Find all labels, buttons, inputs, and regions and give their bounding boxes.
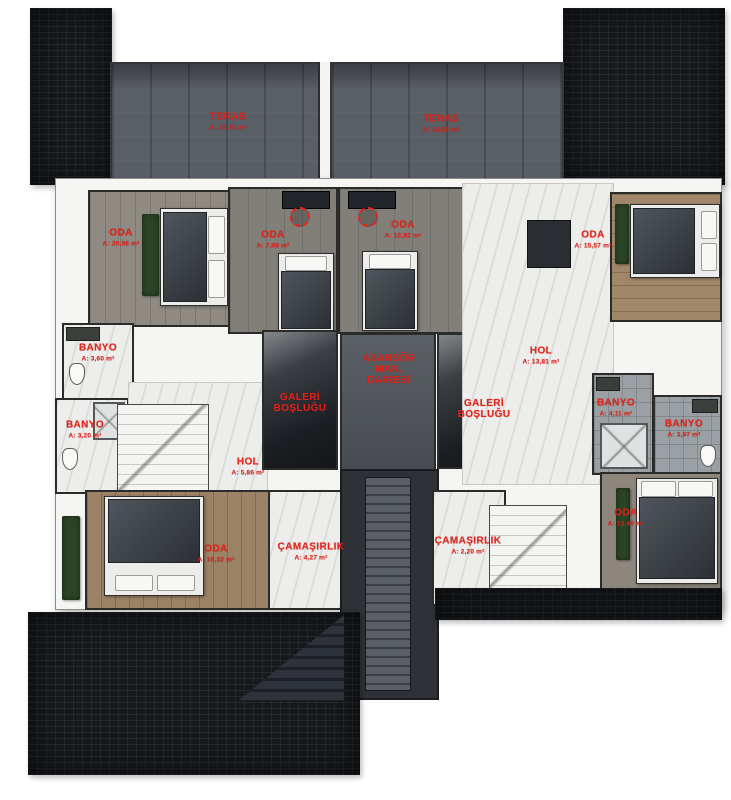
bathroom-counter bbox=[596, 377, 620, 391]
bed-blanket bbox=[633, 208, 695, 274]
bed-blanket bbox=[163, 212, 207, 302]
label-galeri-boslugu-left: GALERİ BOŞLUĞU bbox=[274, 393, 327, 415]
bed-blanket bbox=[365, 269, 415, 329]
label-camasirlik-right: ÇAMAŞIRLIK A: 2,20 m² bbox=[435, 537, 502, 556]
bed bbox=[160, 208, 228, 306]
desk bbox=[348, 191, 396, 209]
bed-blanket bbox=[281, 271, 331, 329]
room-oda-top-left bbox=[88, 190, 232, 327]
label-oda-top-left: ODA A: 20,06 m² bbox=[103, 229, 140, 248]
label-teras-left: TERAS A: 14,75 m² bbox=[210, 113, 247, 132]
stairs-left bbox=[117, 404, 209, 492]
shaft-stairs bbox=[365, 477, 411, 691]
bed bbox=[104, 496, 204, 596]
bed-pillow bbox=[678, 481, 713, 497]
shower bbox=[600, 423, 648, 469]
label-camasirlik-left: ÇAMAŞIRLIK A: 4,27 m² bbox=[278, 543, 345, 562]
plant bbox=[142, 214, 159, 296]
label-teras-right: TERAS A: 14,35 m² bbox=[423, 115, 460, 134]
label-oda-mid-left: ODA A: 7,08 m² bbox=[256, 231, 289, 250]
bed bbox=[636, 478, 718, 584]
room-oda-top-right bbox=[610, 192, 722, 322]
bed bbox=[362, 251, 418, 331]
bed-blanket bbox=[108, 499, 200, 563]
wardrobe bbox=[527, 220, 571, 268]
plant bbox=[62, 516, 80, 600]
bed-pillow bbox=[369, 254, 411, 269]
label-oda-mid-right: ODA A: 12,92 m² bbox=[385, 221, 422, 240]
toilet bbox=[69, 363, 85, 385]
room-oda-mid-right bbox=[338, 187, 466, 334]
label-oda-bottom-left: ODA A: 16,32 m² bbox=[198, 545, 235, 564]
roof-bottom-right bbox=[435, 588, 722, 620]
bathroom-counter bbox=[66, 327, 100, 341]
toilet bbox=[700, 445, 716, 467]
label-galeri-boslugu-right: GALERİ BOŞLUĞU bbox=[458, 399, 511, 421]
label-oda-top-right: ODA A: 15,57 m² bbox=[575, 231, 612, 250]
label-banyo-left-upper: BANYO A: 3,60 m² bbox=[79, 344, 117, 363]
bed-pillow bbox=[641, 481, 676, 497]
room-oda-mid-left bbox=[228, 187, 338, 334]
label-hol-right: HOL A: 13,81 m² bbox=[523, 347, 560, 366]
bathroom-counter bbox=[692, 399, 718, 413]
plant bbox=[615, 204, 629, 264]
room-banyo-right-inner bbox=[592, 373, 654, 475]
bed-pillow bbox=[208, 260, 225, 298]
bed bbox=[630, 204, 720, 278]
bed-pillow bbox=[208, 216, 225, 254]
label-oda-bottom-right: ODA A: 13,40 m² bbox=[608, 509, 645, 528]
chair-mark bbox=[290, 207, 310, 227]
desk bbox=[282, 191, 330, 209]
bed-pillow bbox=[701, 211, 717, 239]
bed bbox=[278, 253, 334, 331]
bed-blanket bbox=[639, 497, 715, 579]
roof-top-right bbox=[563, 8, 725, 185]
room-oda-bottom-left bbox=[85, 490, 272, 610]
roof-top-left bbox=[30, 8, 112, 185]
label-asansor-mak-dairesi: ASANSÖR MAK. DAİRESİ bbox=[363, 354, 416, 386]
bed-pillow bbox=[285, 256, 327, 271]
bed-pillow bbox=[701, 243, 717, 271]
label-banyo-right-outer: BANYO A: 3,97 m² bbox=[665, 420, 703, 439]
bed-pillow bbox=[157, 575, 195, 591]
chair-mark bbox=[358, 207, 378, 227]
label-banyo-right-inner: BANYO A: 4,11 m² bbox=[597, 399, 635, 418]
toilet bbox=[62, 448, 78, 470]
label-banyo-left-lower: BANYO A: 3,20 m² bbox=[66, 421, 104, 440]
floor-plan: TERAS A: 14,75 m² TERAS A: 14,35 m² ODA … bbox=[0, 0, 731, 800]
label-hol-left: HOL A: 5,86 m² bbox=[231, 458, 264, 477]
bed-pillow bbox=[115, 575, 153, 591]
